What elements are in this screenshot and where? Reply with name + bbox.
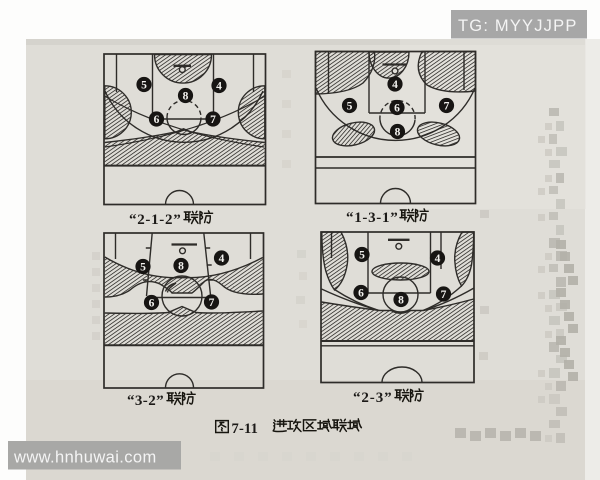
svg-text:4: 4 [435,253,441,265]
svg-text:“3-2”: “3-2” [127,393,164,409]
svg-text:4: 4 [219,253,225,265]
svg-text:8: 8 [178,261,184,273]
svg-text:5: 5 [140,262,146,274]
svg-text:7: 7 [441,289,447,301]
svg-text:7-11: 7-11 [232,421,259,437]
svg-text:TG: MYYJJPP: TG: MYYJJPP [458,17,578,35]
svg-text:8: 8 [183,91,189,103]
svg-text:7: 7 [210,114,216,126]
svg-text:8: 8 [398,295,404,307]
svg-text:www.hnhuwai.com: www.hnhuwai.com [13,449,157,467]
svg-text:5: 5 [359,250,365,262]
svg-text:7: 7 [209,297,215,309]
svg-text:4: 4 [216,81,222,93]
svg-text:6: 6 [149,298,155,310]
svg-text:6: 6 [154,114,160,126]
svg-text:“1-3-1”: “1-3-1” [346,210,398,226]
svg-text:5: 5 [347,101,353,113]
svg-text:6: 6 [394,103,400,115]
svg-text:“2-3”: “2-3” [353,390,393,406]
svg-text:“2-1-2”: “2-1-2” [129,212,181,228]
svg-text:7: 7 [444,101,450,113]
svg-text:8: 8 [395,127,401,139]
svg-text:6: 6 [358,288,364,300]
svg-text:5: 5 [141,80,147,92]
svg-text:4: 4 [392,79,398,91]
